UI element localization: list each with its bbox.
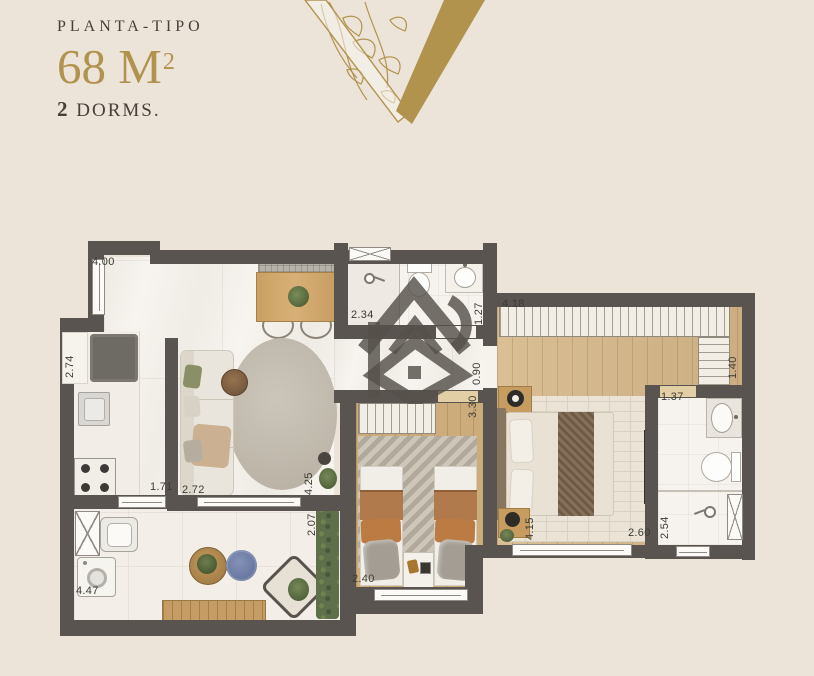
dimension-label: 2.74 bbox=[64, 355, 76, 378]
dimension-label: 1.37 bbox=[661, 391, 684, 403]
shower-glass-door bbox=[727, 494, 743, 540]
dimension-label: 4.15 bbox=[524, 517, 536, 540]
laundry-cabinet bbox=[75, 511, 100, 556]
table-plant-icon bbox=[288, 286, 309, 307]
floor-plant-icon bbox=[319, 468, 337, 489]
garden-table-plant-icon bbox=[197, 554, 217, 574]
table-lamp-icon bbox=[507, 390, 524, 407]
burner-icon bbox=[81, 483, 90, 492]
burner-icon bbox=[81, 464, 90, 473]
vertical-garden bbox=[316, 505, 339, 619]
pouf bbox=[226, 550, 257, 581]
faucet-icon bbox=[734, 415, 738, 419]
wall bbox=[645, 385, 658, 545]
dimension-label: 2.34 bbox=[351, 309, 374, 321]
bed-stripe bbox=[360, 490, 403, 520]
sofa-pillow bbox=[182, 364, 202, 389]
dimension-label: 1.40 bbox=[727, 356, 739, 379]
laundry-basin bbox=[107, 523, 132, 547]
sink-basin bbox=[84, 398, 105, 421]
dimension-label: 3.30 bbox=[467, 395, 479, 418]
sofa-pillow bbox=[183, 439, 204, 463]
lounge-plant-icon bbox=[288, 578, 309, 601]
living-sliding-door bbox=[197, 497, 301, 507]
wall bbox=[165, 338, 178, 495]
wall bbox=[742, 293, 755, 560]
burner-icon bbox=[100, 464, 109, 473]
kitchen-terrace-door bbox=[118, 496, 166, 508]
bed-stripe bbox=[434, 490, 477, 520]
bed-pillow bbox=[509, 418, 534, 463]
dimension-label: 2.72 bbox=[182, 484, 205, 496]
kitchen-sink bbox=[78, 392, 110, 426]
wall bbox=[60, 620, 356, 636]
living-rug bbox=[227, 338, 337, 490]
sofa-pillow bbox=[183, 395, 201, 417]
dimension-label: 4.18 bbox=[502, 298, 525, 310]
dimension-label: 1.27 bbox=[473, 302, 485, 325]
bed-pillow bbox=[509, 468, 534, 512]
master-window bbox=[512, 544, 632, 556]
dimension-label: 4.25 bbox=[303, 472, 315, 495]
floor-plan: 4.00 2.74 2.34 1.27 0.90 3.30 4.18 1.40 … bbox=[0, 0, 814, 676]
bathroom2-window bbox=[676, 546, 710, 557]
burner-icon bbox=[100, 483, 109, 492]
bathroom1-window bbox=[349, 247, 391, 261]
washer-knob-icon bbox=[83, 561, 87, 565]
side-stool bbox=[318, 452, 331, 465]
sofa-cushion-line bbox=[194, 399, 235, 400]
dimension-label: 2.07 bbox=[306, 513, 318, 536]
watermark-logo bbox=[352, 262, 486, 404]
dimension-label: 0.90 bbox=[471, 362, 483, 385]
dimension-label: 4.00 bbox=[92, 256, 115, 268]
nightstand-decor bbox=[420, 562, 431, 574]
toilet-tank bbox=[731, 452, 741, 482]
nightstand-plant-icon bbox=[500, 529, 514, 542]
bed-runner bbox=[558, 412, 594, 516]
dimension-label: 2.54 bbox=[659, 516, 671, 539]
bedroom2-window bbox=[374, 589, 468, 601]
bathroom2-sink-basin bbox=[711, 403, 733, 433]
page-background: PLANTA-TIPO 68 M2 2 DORMS. bbox=[0, 0, 814, 676]
stove bbox=[74, 458, 116, 498]
table-lamp-icon bbox=[505, 512, 520, 527]
wall bbox=[465, 545, 483, 614]
master-wardrobe-side bbox=[698, 337, 730, 386]
dimension-label: 2.40 bbox=[352, 573, 375, 585]
dimension-label: 4.47 bbox=[76, 585, 99, 597]
toilet-bowl bbox=[701, 452, 732, 482]
fridge bbox=[90, 334, 138, 382]
shower-drain-icon bbox=[704, 506, 716, 518]
bedroom2-wardrobe bbox=[358, 403, 436, 434]
coffee-table bbox=[221, 369, 248, 396]
shower-divider-line bbox=[658, 490, 742, 492]
dimension-label: 2.60 bbox=[628, 527, 651, 539]
bench bbox=[162, 600, 266, 622]
laundry-sink bbox=[100, 517, 138, 552]
dimension-label: 1.71 bbox=[150, 481, 173, 493]
